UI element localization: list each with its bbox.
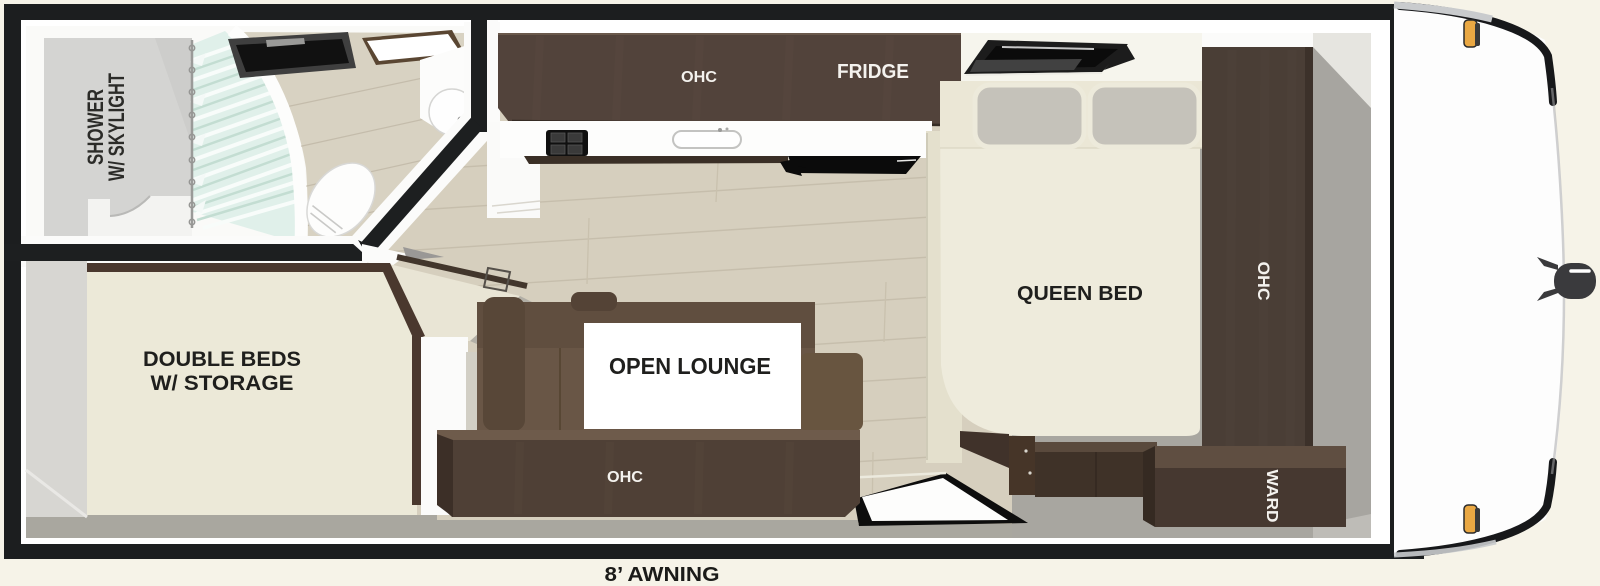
svg-text:FRIDGE: FRIDGE (837, 61, 909, 83)
svg-text:WARD: WARD (1263, 470, 1280, 523)
svg-text:8’ AWNING: 8’ AWNING (605, 564, 720, 586)
svg-text:OHC: OHC (607, 469, 643, 486)
svg-text:OHC: OHC (1254, 262, 1272, 301)
svg-text:W/ SKYLIGHT: W/ SKYLIGHT (104, 73, 129, 181)
svg-text:DOUBLE BEDS: DOUBLE BEDS (143, 348, 301, 371)
svg-text:QUEEN BED: QUEEN BED (1017, 282, 1143, 305)
svg-text:OHC: OHC (681, 69, 717, 86)
svg-text:W/ STORAGE: W/ STORAGE (151, 372, 294, 395)
svg-text:OPEN LOUNGE: OPEN LOUNGE (609, 353, 771, 379)
